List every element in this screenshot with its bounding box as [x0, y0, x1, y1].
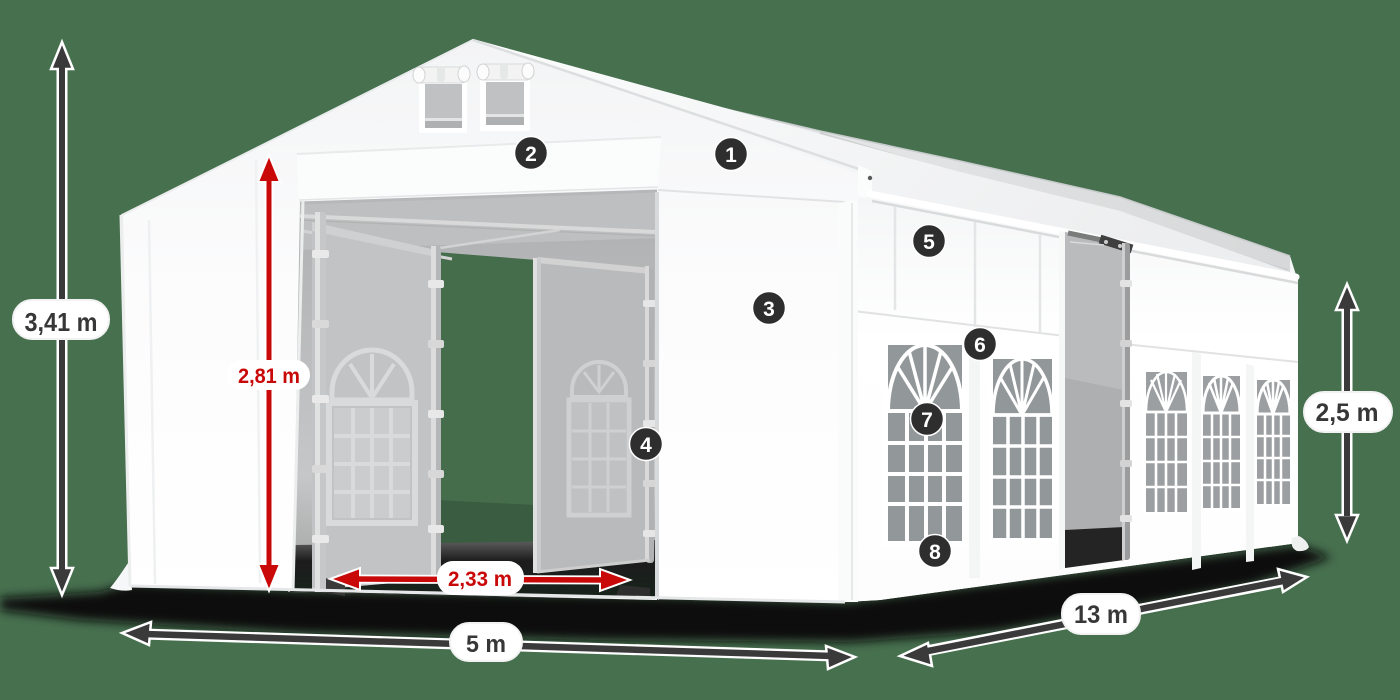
svg-text:2: 2 [525, 143, 537, 166]
svg-text:1: 1 [725, 144, 737, 167]
svg-text:2,81 m: 2,81 m [238, 365, 300, 388]
svg-text:4: 4 [640, 434, 652, 457]
svg-text:5 m: 5 m [466, 631, 506, 658]
svg-text:5: 5 [923, 231, 935, 254]
svg-text:2,5 m: 2,5 m [1316, 399, 1379, 427]
svg-text:2,33 m: 2,33 m [448, 568, 512, 591]
svg-text:13 m: 13 m [1074, 601, 1128, 629]
svg-text:7: 7 [921, 409, 933, 432]
svg-text:8: 8 [929, 541, 941, 564]
svg-text:3,41 m: 3,41 m [25, 307, 98, 337]
svg-text:3: 3 [763, 298, 775, 321]
svg-text:6: 6 [974, 334, 986, 357]
